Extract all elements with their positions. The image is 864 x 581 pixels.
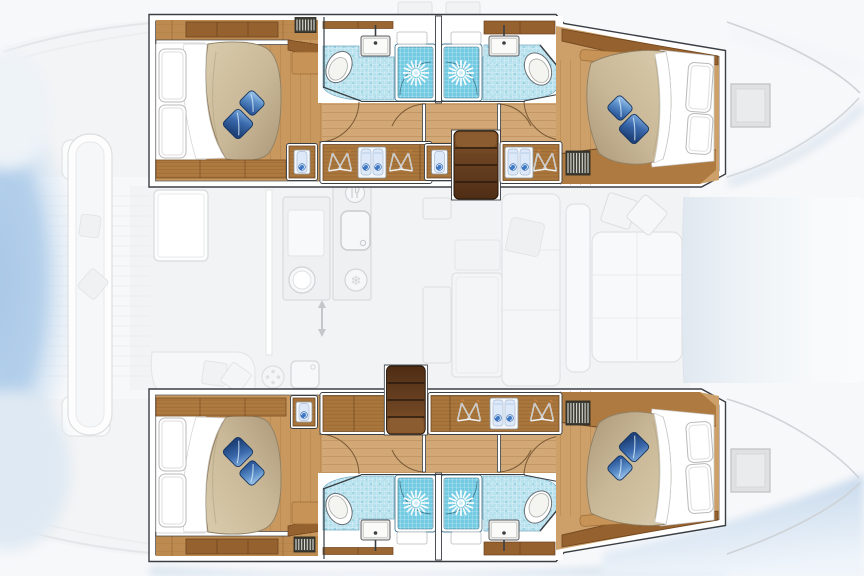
svg-text:❄: ❄ [351,273,362,288]
